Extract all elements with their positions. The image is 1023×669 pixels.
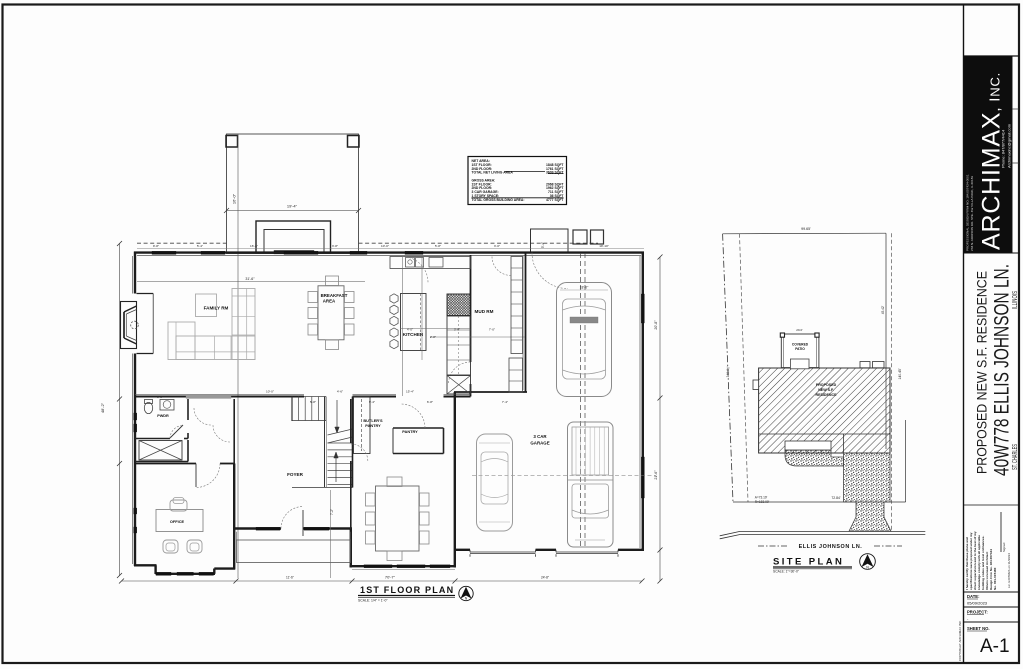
svg-text:OFFICE: OFFICE bbox=[170, 519, 185, 524]
svg-text:PWDR: PWDR bbox=[157, 414, 169, 418]
svg-text:6'-8": 6'-8" bbox=[427, 400, 433, 404]
svg-text:233 N. ADDISON RD. STE. 4W VIL: 233 N. ADDISON RD. STE. 4W VILLA PARK, I… bbox=[970, 176, 974, 251]
svg-text:PATIO: PATIO bbox=[795, 347, 805, 351]
svg-text:31'-6": 31'-6" bbox=[245, 277, 255, 281]
svg-text:05/09/2023: 05/09/2023 bbox=[967, 601, 988, 606]
svg-text:DATE:: DATE: bbox=[967, 594, 979, 599]
svg-text:SHEET NO.: SHEET NO. bbox=[967, 626, 990, 631]
svg-text:ELLIS JOHNSON LN.: ELLIS JOHNSON LN. bbox=[799, 544, 863, 550]
svg-text:N: N bbox=[866, 565, 869, 569]
svg-text:19'-4": 19'-4" bbox=[287, 204, 298, 209]
svg-text:PROJECT:: PROJECT: bbox=[967, 610, 988, 615]
svg-text:ILLINOIS: ILLINOIS bbox=[1012, 291, 1019, 309]
svg-text:5'-4": 5'-4" bbox=[541, 242, 545, 248]
svg-text:24'-8": 24'-8" bbox=[541, 576, 549, 580]
svg-text:20'-8": 20'-8" bbox=[654, 320, 658, 330]
svg-text:PROPOSED NEW S.F. RESIDENCE: PROPOSED NEW S.F. RESIDENCE bbox=[975, 271, 990, 474]
svg-text:72.84': 72.84' bbox=[831, 496, 840, 500]
svg-text:AREA: AREA bbox=[323, 299, 336, 304]
svg-text:4'-0": 4'-0" bbox=[407, 328, 413, 332]
svg-text:9'-4": 9'-4" bbox=[369, 400, 375, 404]
svg-text:140.45': 140.45' bbox=[898, 368, 902, 379]
svg-text:COPYRIGHT ARCHIMAX INC: COPYRIGHT ARCHIMAX INC bbox=[958, 620, 962, 661]
svg-text:7'-4": 7'-4" bbox=[502, 400, 508, 404]
svg-text:5'-8": 5'-8" bbox=[310, 400, 316, 404]
svg-text:4'-6": 4'-6" bbox=[337, 390, 343, 394]
svg-text:BREAKFAST: BREAKFAST bbox=[321, 293, 348, 298]
svg-text:TOTAL GROSS BUILDING AREA:: TOTAL GROSS BUILDING AREA: bbox=[472, 198, 525, 202]
svg-text:MUD RM: MUD RM bbox=[475, 309, 494, 314]
svg-text:Archimaxinc@gmail.com: Archimaxinc@gmail.com bbox=[1007, 123, 1012, 168]
svg-text:1ST FLOOR PLAN: 1ST FLOOR PLAN bbox=[360, 585, 454, 595]
svg-text:5'-4": 5'-4" bbox=[197, 244, 203, 248]
svg-text:RESIDENCE: RESIDENCE bbox=[816, 393, 838, 397]
svg-text:R=183.00': R=183.00' bbox=[755, 500, 770, 504]
svg-text:3'-0": 3'-0" bbox=[494, 244, 500, 248]
svg-text:29.0': 29.0' bbox=[796, 328, 803, 332]
svg-text:7'-0": 7'-0" bbox=[489, 328, 495, 332]
svg-text:3 CAR: 3 CAR bbox=[533, 434, 547, 439]
svg-text:15'-4": 15'-4" bbox=[406, 390, 414, 394]
svg-text:A-1: A-1 bbox=[980, 636, 1010, 657]
svg-text:11'-6": 11'-6" bbox=[286, 576, 294, 580]
svg-text:45.42': 45.42' bbox=[881, 305, 885, 314]
svg-text:Signed: Signed bbox=[1002, 542, 1006, 552]
svg-text:SITE PLAN: SITE PLAN bbox=[773, 557, 844, 568]
svg-text:7'-2": 7'-2" bbox=[330, 509, 334, 515]
svg-text:Phone: 847/877/4414: Phone: 847/877/4414 bbox=[1001, 129, 1006, 168]
svg-text:Lic. EXPIRES on 11/30/24: Lic. EXPIRES on 11/30/24 bbox=[1007, 553, 1011, 588]
svg-text:10'-0": 10'-0" bbox=[381, 244, 389, 248]
svg-text:3'-8": 3'-8" bbox=[332, 244, 338, 248]
svg-text:4777 SQFT: 4777 SQFT bbox=[546, 198, 564, 202]
svg-text:NEW S.F.: NEW S.F. bbox=[818, 388, 834, 392]
svg-text:48'-2": 48'-2" bbox=[100, 402, 105, 413]
svg-text:18'-0": 18'-0" bbox=[580, 286, 589, 290]
svg-text:3609 SQFT: 3609 SQFT bbox=[546, 171, 564, 175]
svg-text:10'-0": 10'-0" bbox=[266, 390, 274, 394]
svg-text:99.65': 99.65' bbox=[801, 227, 811, 231]
svg-text:16'-0": 16'-0" bbox=[232, 193, 237, 204]
svg-text:6'-0": 6'-0" bbox=[157, 395, 163, 399]
svg-text:40W778 ELLIS JOHNSON LN.: 40W778 ELLIS JOHNSON LN. bbox=[991, 264, 1014, 476]
svg-text:19'-10": 19'-10" bbox=[599, 244, 609, 248]
svg-text:PANTRY: PANTRY bbox=[402, 429, 418, 434]
svg-text:16'-8": 16'-8" bbox=[250, 244, 258, 248]
svg-text:FAMILY RM: FAMILY RM bbox=[204, 306, 229, 311]
svg-text:9'-8": 9'-8" bbox=[153, 244, 159, 248]
svg-text:KITCHEN: KITCHEN bbox=[403, 332, 424, 337]
svg-text:70'-7": 70'-7" bbox=[385, 575, 396, 580]
svg-text:COVERED: COVERED bbox=[792, 343, 809, 347]
svg-text:2'-8": 2'-8" bbox=[430, 335, 436, 339]
svg-text:No. 001-015480: No. 001-015480 bbox=[993, 567, 997, 590]
svg-text:SCALE: 1/4" = 1'-0": SCALE: 1/4" = 1'-0" bbox=[358, 599, 388, 603]
svg-text:5'-8": 5'-8" bbox=[435, 244, 441, 248]
svg-text:3'-6": 3'-6" bbox=[454, 328, 460, 332]
svg-text:140.61': 140.61' bbox=[726, 366, 730, 378]
svg-text:PROFESSIONAL DESIGN FIRM NO: 1: PROFESSIONAL DESIGN FIRM NO: 184.007424-… bbox=[966, 174, 970, 251]
svg-text:SCALE: 1"=30'-0": SCALE: 1"=30'-0" bbox=[773, 570, 800, 574]
svg-text:PANTRY: PANTRY bbox=[365, 423, 381, 428]
svg-text:PROPOSED: PROPOSED bbox=[816, 383, 837, 387]
svg-text:FOYER: FOYER bbox=[287, 472, 304, 477]
svg-text:21'-6": 21'-6" bbox=[654, 470, 658, 480]
svg-text:GARAGE: GARAGE bbox=[530, 441, 549, 446]
svg-text:ST. CHARLES: ST. CHARLES bbox=[1012, 444, 1019, 470]
